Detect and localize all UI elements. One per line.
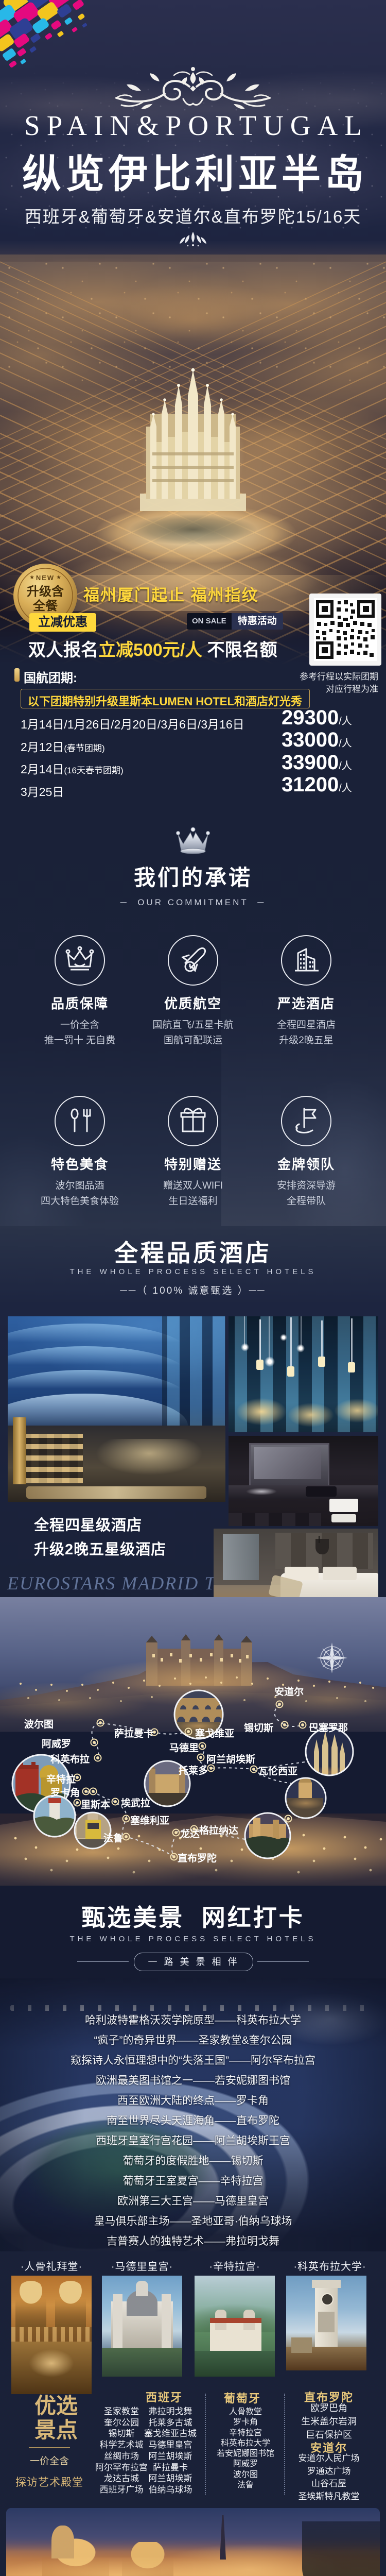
svg-text:塞戈维亚: 塞戈维亚 <box>195 1727 234 1739</box>
svg-text:龙达: 龙达 <box>180 1828 200 1840</box>
svg-text:锡切斯: 锡切斯 <box>244 1722 273 1734</box>
svg-text:巴塞罗那: 巴塞罗那 <box>309 1722 348 1734</box>
svg-text:全餐: 全餐 <box>32 599 58 613</box>
svg-text:★: ★ <box>56 574 61 581</box>
svg-text:格拉纳达: 格拉纳达 <box>199 1824 238 1836</box>
svg-text:塞维利亚: 塞维利亚 <box>130 1815 169 1826</box>
svg-text:埃武拉: 埃武拉 <box>121 1797 150 1809</box>
svg-text:安道尔: 安道尔 <box>274 1686 304 1698</box>
svg-text:萨拉曼卡: 萨拉曼卡 <box>114 1727 153 1739</box>
svg-text:波尔图: 波尔图 <box>24 1718 54 1730</box>
svg-text:★: ★ <box>29 574 34 581</box>
svg-text:辛特拉: 辛特拉 <box>46 1773 76 1785</box>
svg-text:罗卡角: 罗卡角 <box>50 1787 80 1799</box>
svg-text:升级含: 升级含 <box>27 584 64 599</box>
svg-text:NEW: NEW <box>36 574 55 582</box>
svg-text:瓦伦西亚: 瓦伦西亚 <box>258 1765 297 1777</box>
svg-text:托莱多: 托莱多 <box>179 1765 208 1776</box>
svg-text:科英布拉: 科英布拉 <box>50 1753 90 1765</box>
svg-text:里斯本: 里斯本 <box>81 1799 110 1810</box>
svg-text:直布罗陀: 直布罗陀 <box>178 1852 217 1864</box>
svg-text:法鲁: 法鲁 <box>103 1832 123 1844</box>
svg-text:阿兰胡埃斯: 阿兰胡埃斯 <box>206 1753 255 1765</box>
svg-text:马德里: 马德里 <box>169 1742 199 1754</box>
svg-text:阿威罗: 阿威罗 <box>42 1738 71 1750</box>
